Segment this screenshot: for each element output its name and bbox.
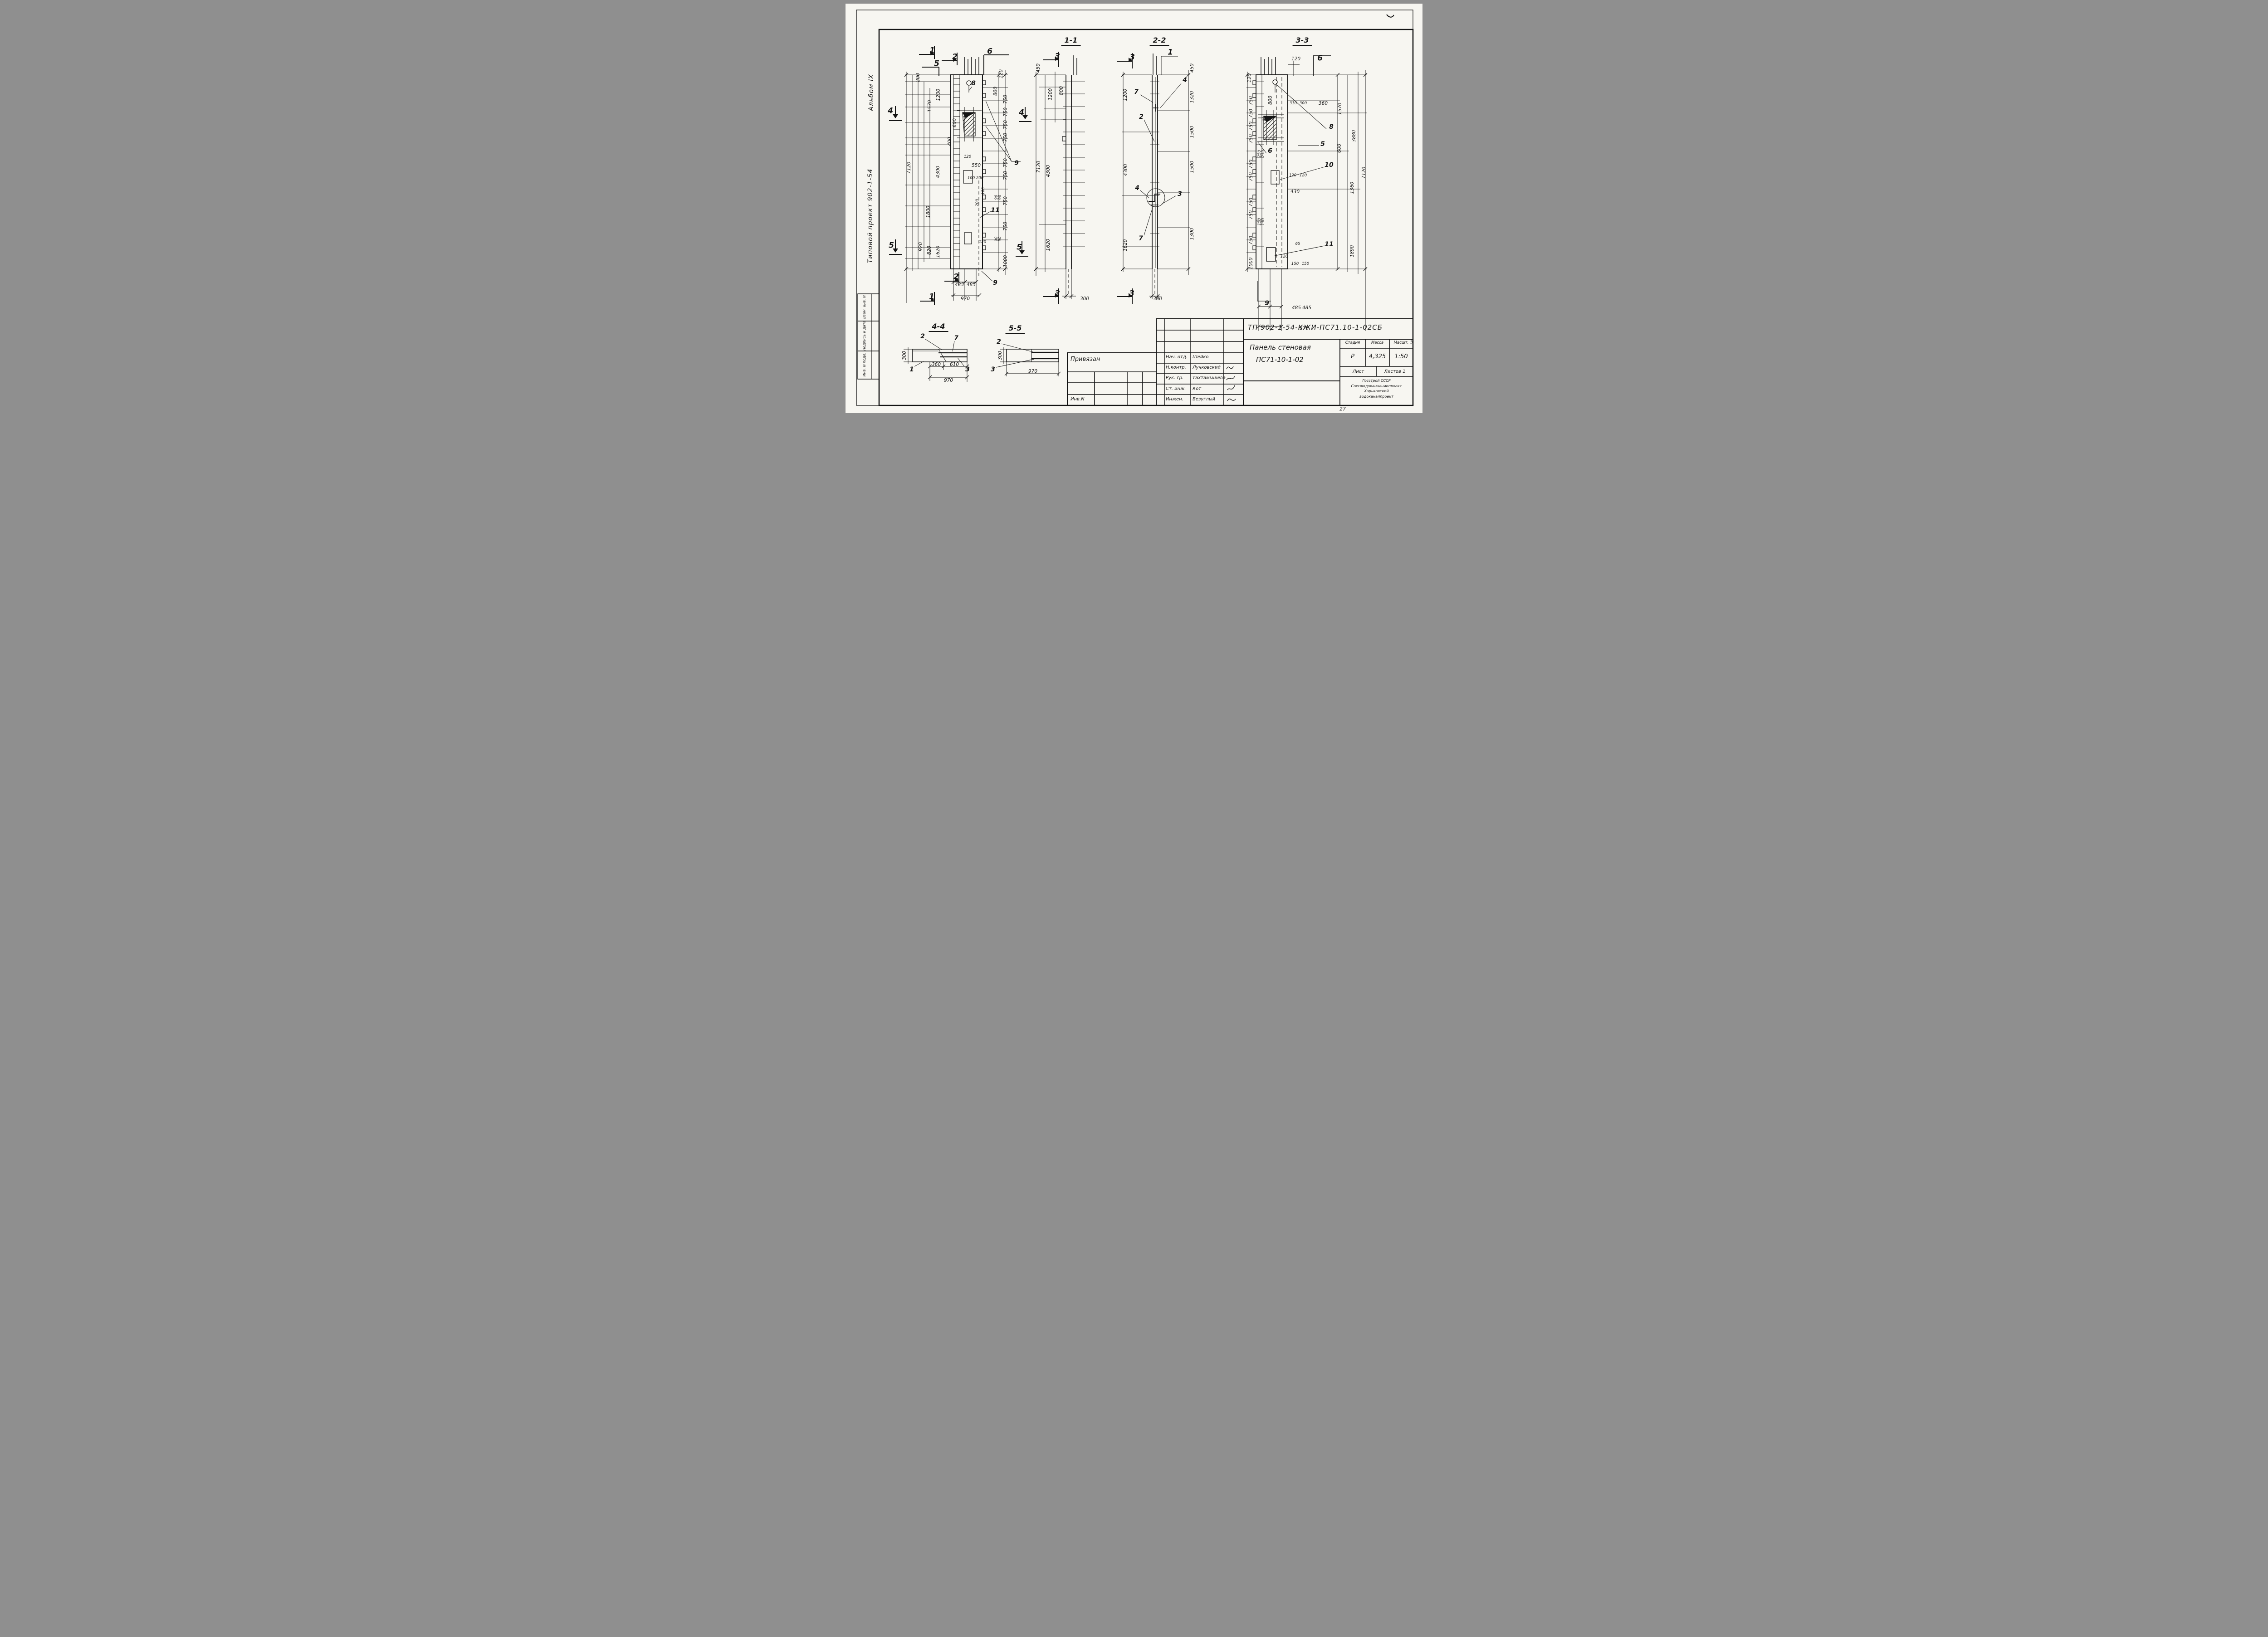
callout-label: 1 [909,366,914,373]
dimension-label: 800 [1268,96,1273,105]
dimension-label: 120 [1281,255,1288,259]
dimension-label: 310 [1290,102,1297,106]
dimension-label: 750 [1003,196,1008,205]
dimension-label: 1890 [1350,245,1355,258]
dimension-label: 1570 [1338,103,1343,115]
callout-label: 7 [1139,235,1143,242]
dimension-label: 800 [993,87,998,96]
callout-label: 8 [1329,124,1334,130]
dimension-label: 360 [932,362,941,367]
dimension-label: 1200 [1123,89,1128,101]
dimension-label: 300 [1300,102,1307,106]
organization: Госстрой СССР Союзводоканалниипроект Хар… [1340,378,1413,399]
signature-name: Кот [1193,387,1201,391]
dimension-label: 7120 [1362,167,1367,179]
stage-value: Р [1340,354,1365,360]
dimension-label: 150 [1291,262,1299,266]
view-title: 1-1 [1061,37,1081,46]
section-mark-label: 6 [1317,55,1323,63]
dimension-label: 1620 [1046,239,1051,251]
sheets-label: Листов 1 [1377,369,1413,374]
dimension-label: 120 [1289,174,1296,178]
dimension-label: 1570 [928,100,933,112]
section-mark-label: 2 [953,273,959,281]
dimension-label: 750 [1003,171,1008,180]
dimension-label: 120 [999,69,1004,78]
sheets-count: 1 [1403,369,1405,374]
section-mark-label: 1 [929,293,934,301]
doc-code: ТП.902-1-54-КЖИ-ПС71.10-1-02СБ [1248,324,1411,331]
signature-role: Н.контр. [1166,365,1186,370]
callout-label: 9 [1265,300,1269,307]
dimension-label: 450 [1036,63,1041,73]
dimension-label: 1620 [1123,239,1128,252]
dimension-label: 485 [1302,306,1311,311]
dimension-label: 970 [944,378,953,383]
section-mark-label: 3 [1055,53,1060,61]
dimension-label: 4300 [936,166,941,178]
dimension-label: 200 [916,73,921,82]
callout-label: 9 [993,280,997,286]
mass-label: Масса [1365,341,1389,345]
org-line: водоканалпроект [1340,394,1413,400]
callout-label: 4 [1135,185,1139,191]
dimension-label: 750 [1249,236,1254,245]
detail-5-5 [996,344,1059,376]
callout-label: 2 [997,339,1001,345]
callout-label: 6 [1268,148,1272,154]
section-mark-label: 1 [1168,49,1173,57]
callout-label: 4 [1183,77,1187,83]
dimension-label: 970 [1028,369,1037,374]
dimension-label: 65 [1295,242,1300,246]
section-mark-label: 4 [1019,109,1024,117]
section-mark-label: 3 [1055,290,1060,298]
sheet-frame [856,10,1413,405]
callout-label: 9 [1014,160,1019,166]
signature-role: Нач. отд. [1166,355,1188,360]
callout-label: 11 [1325,241,1333,248]
stray-mark [1387,15,1394,17]
section-mark-label: 3 [1129,54,1135,62]
scale-label: Масшт. [1389,341,1413,345]
dimension-label: 1200 [1048,88,1053,101]
side-text: Альбом IX [868,74,875,111]
dimension-label: 1360 [1350,182,1355,194]
dimension-label: 1320 [1190,91,1195,103]
section-mark-label: 5 [889,242,894,250]
dimension-label: 750 [1249,96,1254,105]
dimension-label: 360 [1319,101,1328,106]
callout-label: 2 [1139,114,1144,120]
dimension-label: 450 [1190,63,1195,73]
org-line: Харьковский [1340,389,1413,394]
dimension-label: 1300 [1190,228,1195,240]
dimension-label: 300 [998,351,1003,360]
dimension-label: 1200 [936,89,941,101]
section-mark-label: 5 [934,60,939,68]
dimension-label: 1800 [926,206,931,218]
dimension-label: 200 [976,199,980,206]
section-mark-label: 4 [888,107,893,115]
dimension-label: 1500 [1190,126,1195,138]
dimension-label: 485 [1292,306,1301,311]
callout-label: 3 [1178,191,1182,197]
org-line: Госстрой СССР [1340,378,1413,384]
dimension-label: 100 [968,176,975,180]
callout-label: 8 [971,80,976,87]
dimension-label: 485 [955,283,964,287]
dimension-label: 90 [998,237,1002,242]
signature-name: Шейко [1193,355,1209,360]
dimension-label: 750 [1003,95,1008,104]
dimension-label: 750 [1003,120,1008,129]
signature-role: Инжен. [1166,397,1183,402]
signature-role: Рук. гр. [1166,376,1183,380]
dimension-label: 750 [1249,210,1254,219]
dimension-label: 150 [1302,262,1309,266]
signature-scribbles [1227,366,1236,401]
view-title: 2-2 [1150,37,1169,46]
section-mark-label: 3 [1129,290,1134,298]
section-mark-label: 5 [1017,244,1022,252]
dimension-label: 750 [1249,160,1254,169]
pencil-note: 27 [1339,407,1346,412]
dimension-label: 750 [1003,222,1008,231]
callout-label: 7 [1134,89,1139,95]
dimension-label: 4300 [1046,165,1051,177]
signature-role: Ст. инж. [1166,387,1186,391]
inventory-label: Инв.N [1070,397,1085,402]
dimension-label: 600 [953,118,958,127]
dimension-label: 750 [1249,198,1254,207]
dimension-label: 7120 [907,162,912,174]
stage-label: Стадия [1340,341,1365,345]
dimension-label: 750 [1249,134,1254,143]
dimension-label: 120 [964,155,971,159]
dimension-label: 750 [1249,109,1254,118]
dimension-label: 120 [979,240,986,244]
dimension-label: 120 [1300,174,1307,178]
dimension-label: 90 [1266,117,1271,122]
dimension-label: 600 [1337,144,1342,153]
callout-label: 11 [991,207,999,214]
dimension-label: 3880 [1352,130,1357,142]
dimension-label: 750 [1249,122,1254,131]
signature-name: Безуглый [1193,397,1215,402]
signature-name: Тахтамышева [1193,376,1226,380]
dimension-label: 1500 [1190,161,1195,173]
view-elevation [889,46,1031,305]
dimension-label: 90 [998,195,1002,200]
dimension-label: 610 [950,362,959,367]
dimension-label: 120 [1247,73,1252,83]
callout-label: 7 [954,335,958,341]
dimension-label: 300 [1080,297,1089,302]
scale-value: 1:50 [1389,354,1413,360]
dimension-label: 970 [961,297,970,302]
callout-label: 3 [991,366,995,373]
section-mark-label: 6 [987,48,992,56]
sheets-word: Листов [1384,369,1401,374]
callout-label: 10 [1325,162,1333,168]
dimension-label: 1000 [1249,258,1254,270]
product-name-line1: Панель стеновая [1250,344,1311,351]
view-title: 4-4 [929,323,948,332]
side-text: Типовой проект 902-1-54 [867,169,874,263]
dimension-label: 750 [1249,172,1254,181]
dimension-label: 100 [982,187,986,195]
drawing-linework [846,4,1422,413]
dimension-label: 200 [976,176,983,180]
dimension-label: 250 [1261,150,1266,157]
dimension-label: 7120 [1036,161,1041,173]
sheet-label: Лист [1340,369,1377,374]
product-name-line2: ПС71-10-1-02 [1256,356,1304,364]
signature-name: Лучковский [1193,365,1221,370]
callout-label: 3 [965,366,970,373]
dimension-label: 300 [902,351,907,360]
dimension-label: 430 [1290,190,1300,195]
dimension-label: 920 [919,242,924,251]
mass-value: 4,325 [1365,354,1389,360]
stamp-label: Инв. N подл. [863,353,866,377]
dimension-label: 150 [1261,218,1266,225]
drawing-sheet: Альбом IXТиповой проект 902-1-54Взам. ин… [846,4,1422,413]
dimension-label: 300 [1153,297,1162,302]
dimension-label: 750 [1003,158,1008,167]
dimension-label: 4300 [1124,164,1129,176]
stamp-label: Подпись и дата [863,321,866,351]
dimension-label: 750 [1003,107,1008,117]
dimension-label: 1620 [936,246,941,258]
org-line: Союзводоканалниипроект [1340,384,1413,389]
dimension-label: 550 [972,163,981,168]
dimension-label: 400 [948,137,953,146]
callout-label: 5 [1320,141,1325,147]
dimension-label: 1000 [1003,255,1008,268]
binding-label: Привязан [1070,356,1100,363]
dimension-label: 750 [1003,133,1008,142]
dimension-label: 120 [1291,57,1300,62]
stamp-column [858,294,879,379]
dimension-label: 485 [967,283,976,287]
callout-label: 2 [920,333,925,340]
detail-4-4 [904,339,967,382]
view-title: 5-5 [1006,325,1025,334]
stamp-label: Взам. инв. N [863,295,866,319]
dimension-label: 820 [927,246,932,255]
section-mark-label: 2 [952,54,958,61]
section-mark-label: 1 [929,47,935,55]
view-title: 3-3 [1293,37,1312,46]
dimension-label: 800 [1059,86,1064,95]
